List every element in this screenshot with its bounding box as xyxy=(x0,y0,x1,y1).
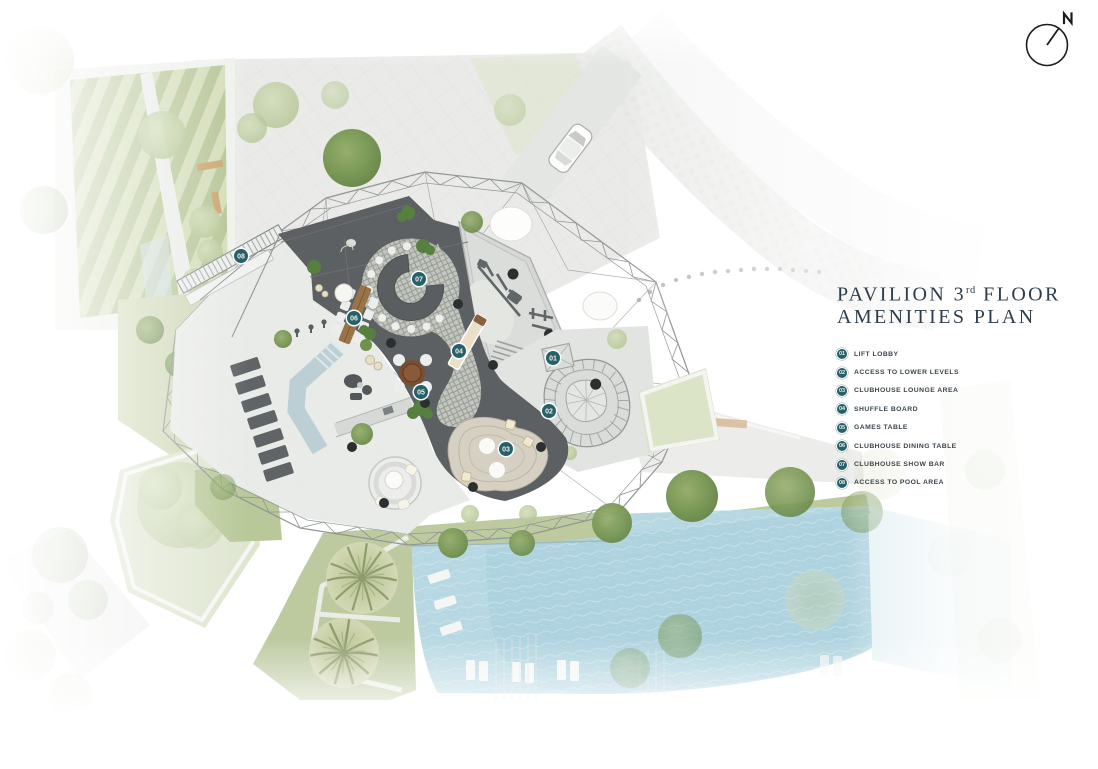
svg-text:05: 05 xyxy=(417,390,425,397)
svg-text:01: 01 xyxy=(549,356,557,363)
svg-text:08: 08 xyxy=(237,254,245,261)
svg-text:02: 02 xyxy=(545,409,553,416)
svg-text:06: 06 xyxy=(350,316,358,323)
svg-text:03: 03 xyxy=(502,447,510,454)
svg-text:07: 07 xyxy=(415,277,423,284)
svg-text:04: 04 xyxy=(455,349,463,356)
